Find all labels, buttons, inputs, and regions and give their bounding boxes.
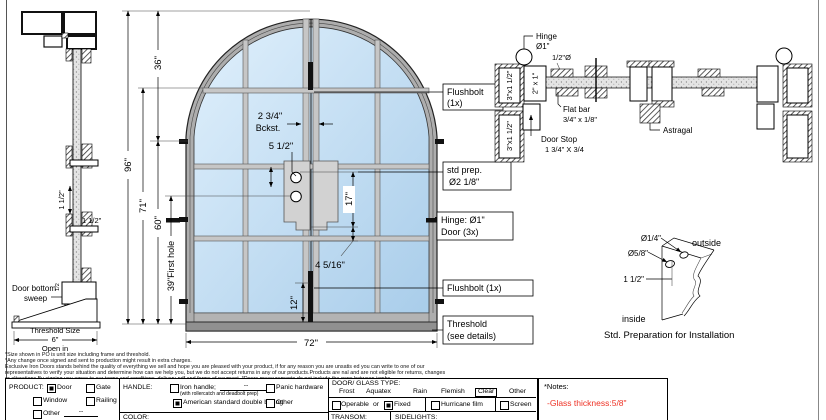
lock-hole-bottom xyxy=(291,191,302,202)
callout-std-prep: std prep. Ø2 1/8" xyxy=(443,162,511,190)
jamb-size-label-2: 3"x1 1/2" xyxy=(505,121,514,151)
checkbox-screen[interactable] xyxy=(500,401,509,410)
option-railing: Railing xyxy=(96,398,117,405)
option-fixed: Fixed xyxy=(394,402,411,409)
door-elevation: 96" 71" 36" 60" 39"First hole 72" 2 3/4"… xyxy=(122,11,533,349)
checkbox-handle-other[interactable] xyxy=(266,399,275,408)
technical-drawing: 1 1/2" 1 1/2" Door bottom sweep 1/2 Thre… xyxy=(0,0,826,352)
threshold-width: 6" xyxy=(52,335,59,344)
option-gate: Gate xyxy=(96,385,111,392)
checkbox-railing[interactable] xyxy=(86,397,95,406)
option-panic: Panic hardware xyxy=(276,385,323,392)
install-caption: Std. Preparation for Installation xyxy=(604,330,734,341)
astragal-label: Astragal xyxy=(663,126,693,135)
hole-small-label: Ø1/4" xyxy=(641,234,661,243)
dim-4-5-16: 4 5/16" xyxy=(315,260,345,271)
svg-text:Ø2 1/8": Ø2 1/8" xyxy=(449,177,479,187)
checkbox-gate[interactable] xyxy=(86,384,95,393)
hole-large-label: Ø5/8" xyxy=(628,249,648,258)
head-jamb-section: 3"x1 1/2" 3"x1 1/2" Hinge Ø1" 2" x 1" 1/… xyxy=(495,32,812,162)
option-hurricane: Hurricane film xyxy=(441,402,483,409)
door-stop-label: Door Stop xyxy=(541,135,578,144)
callout-flushbolt-top: Flushbolt (1x) xyxy=(443,84,503,110)
dim-71: 71" xyxy=(138,199,149,213)
svg-text:Threshold: Threshold xyxy=(447,319,487,329)
checkbox-iron-handle[interactable] xyxy=(170,384,179,393)
transom-label: TRANSOM: xyxy=(331,415,367,420)
checkbox-panic[interactable] xyxy=(266,384,275,393)
product-other-blank[interactable]: -- xyxy=(64,409,98,417)
transom-row: TRANSOM: SIDELIGHTS: xyxy=(328,411,536,420)
dim-5-5: 5 1/2" xyxy=(269,141,294,152)
outside-label: outside xyxy=(692,238,721,248)
door-stop-size: 1 3/4" X 3/4 xyxy=(545,145,584,154)
threshold-size-label: Threshold Size xyxy=(30,326,80,335)
glass-type-clear-selected[interactable]: Clear xyxy=(475,388,497,397)
product-cell: PRODUCT: Door Gate Window Railing Other … xyxy=(5,378,121,420)
dim-side-gap: 1 1/2" xyxy=(57,190,66,210)
glass-type-frost[interactable]: Frost xyxy=(339,389,354,396)
dim-hinge-plate: 1 1/2" xyxy=(82,216,102,225)
option-door: Door xyxy=(57,385,72,392)
dim-72: 72" xyxy=(304,338,318,349)
hinge-circle-left xyxy=(516,49,532,65)
dim-96: 96" xyxy=(123,158,134,172)
hole-five-eighth xyxy=(665,259,676,268)
flushbolt-bottom-rod xyxy=(308,271,313,322)
hinge-circle-right xyxy=(776,48,792,64)
product-label: PRODUCT: xyxy=(9,385,44,392)
backset-label: Bckst. xyxy=(256,123,281,133)
glass-subrow: Operable or Fixed Hurricane film Screen xyxy=(328,397,536,412)
callout-threshold: Threshold (see details) xyxy=(443,316,533,344)
checkbox-american-boring[interactable] xyxy=(173,399,182,408)
svg-text:Hinge: Ø1": Hinge: Ø1" xyxy=(441,215,485,225)
glass-type-other[interactable]: Other xyxy=(509,389,526,396)
glass-type-rain[interactable]: Rain xyxy=(413,389,427,396)
flat-bar-label: Flat bar xyxy=(563,105,590,114)
glass-type-flemish[interactable]: Flemish xyxy=(441,389,465,396)
handle-cell: HANDLE: Iron handle; -- (with rollercatc… xyxy=(119,378,330,414)
dim-36: 36" xyxy=(153,56,164,70)
page-border-right xyxy=(818,0,819,420)
leaf-size-label: 2" x 1" xyxy=(531,72,540,94)
dim-60: 60" xyxy=(153,216,164,230)
dim-backset: 2 3/4" xyxy=(258,111,283,122)
lock-hole-top xyxy=(291,172,302,183)
checkbox-product-other[interactable] xyxy=(33,410,42,419)
iron-handle-blank[interactable]: -- xyxy=(220,383,272,391)
svg-text:(see details): (see details) xyxy=(447,331,496,341)
jamb-size-label: 3"x1 1/2" xyxy=(505,70,514,100)
hinge-label: Hinge xyxy=(536,32,557,41)
option-window: Window xyxy=(43,398,67,405)
lock-plate-right xyxy=(313,161,338,230)
left-section-view: 1 1/2" 1 1/2" Door bottom sweep 1/2 Thre… xyxy=(12,12,102,352)
checkbox-hurricane[interactable] xyxy=(431,401,440,410)
checkbox-window[interactable] xyxy=(33,397,42,406)
glass-type-cell: DOOR/ GLASS TYPE: Frost Aquatex Rain Fle… xyxy=(328,378,538,420)
option-operable: Operable xyxy=(341,402,369,409)
flat-bar-size: 3/4" x 1/8" xyxy=(563,115,597,124)
option-handle-other: Other xyxy=(276,400,293,407)
svg-text:Door (3x): Door (3x) xyxy=(441,227,479,237)
notes-cell: *Notes: -Glass thickness:5/8" xyxy=(538,378,668,420)
sweep-label-2: sweep xyxy=(24,294,48,303)
dim-17: 17" xyxy=(344,192,355,206)
install-detail: Ø1/4" outside Ø5/8" 1 1/2" inside Std. P… xyxy=(604,234,734,341)
glass-type-aquatex[interactable]: Aquatex xyxy=(366,389,391,396)
handle-label: HANDLE: xyxy=(123,385,152,392)
iron-handle-note: (with rollercatch and deadbolt prep) xyxy=(180,392,258,397)
svg-text:Flushbolt (1x): Flushbolt (1x) xyxy=(447,283,502,293)
glass-type-label: DOOR/ GLASS TYPE: xyxy=(332,381,400,388)
checkbox-operable[interactable] xyxy=(332,401,341,410)
inside-label: inside xyxy=(622,314,646,324)
offset-label: 1 1/2" xyxy=(623,275,644,284)
svg-text:(1x): (1x) xyxy=(447,98,463,108)
hinge-dia-label: Ø1" xyxy=(536,42,550,51)
checkbox-door[interactable] xyxy=(47,384,56,393)
svg-text:std prep.: std prep. xyxy=(447,165,482,175)
drawing-sheet: 1 1/2" 1 1/2" Door bottom sweep 1/2 Thre… xyxy=(0,0,826,420)
notes-title: *Notes: xyxy=(544,383,569,391)
or-word: or xyxy=(373,402,379,409)
callout-flushbolt-bottom: Flushbolt (1x) xyxy=(443,280,533,296)
threshold-bar xyxy=(186,322,437,331)
dim-sweep-gap: 1/2 xyxy=(55,283,61,291)
option-product-other: Other xyxy=(43,411,60,418)
sweep-label-1: Door bottom xyxy=(12,284,56,293)
flushbolt-top-rod xyxy=(308,62,313,90)
glass-thickness-note: -Glass thickness:5/8" xyxy=(547,399,627,408)
swing-direction: Open in xyxy=(42,344,68,352)
option-screen: Screen xyxy=(510,402,532,409)
svg-text:Flushbolt: Flushbolt xyxy=(447,87,484,97)
callout-hinge: Hinge: Ø1" Door (3x) xyxy=(437,212,513,240)
checkbox-fixed[interactable] xyxy=(384,401,393,410)
dim-12: 12" xyxy=(289,296,300,310)
sidelights-label: SIDELIGHTS: xyxy=(395,415,437,420)
half-dia-label: 1/2"Ø xyxy=(552,53,571,62)
color-cell: COLOR: Black Dark ORB Medium ORB Heavy O… xyxy=(119,412,330,420)
dim-first-hole: 39"First hole xyxy=(166,241,176,291)
